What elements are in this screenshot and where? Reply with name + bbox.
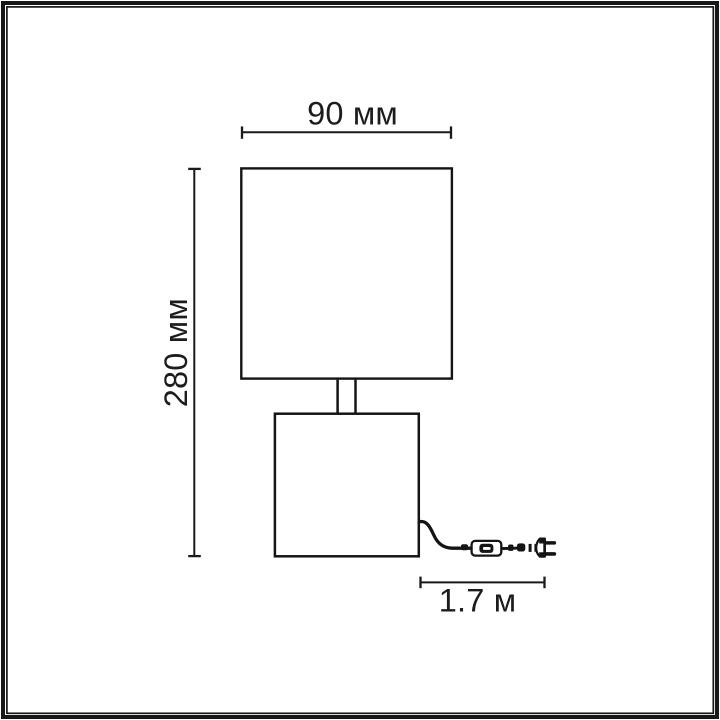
svg-text:1.7 м: 1.7 м (439, 583, 517, 619)
svg-text:90 мм: 90 мм (307, 96, 398, 132)
svg-text:280 мм: 280 мм (158, 298, 194, 407)
